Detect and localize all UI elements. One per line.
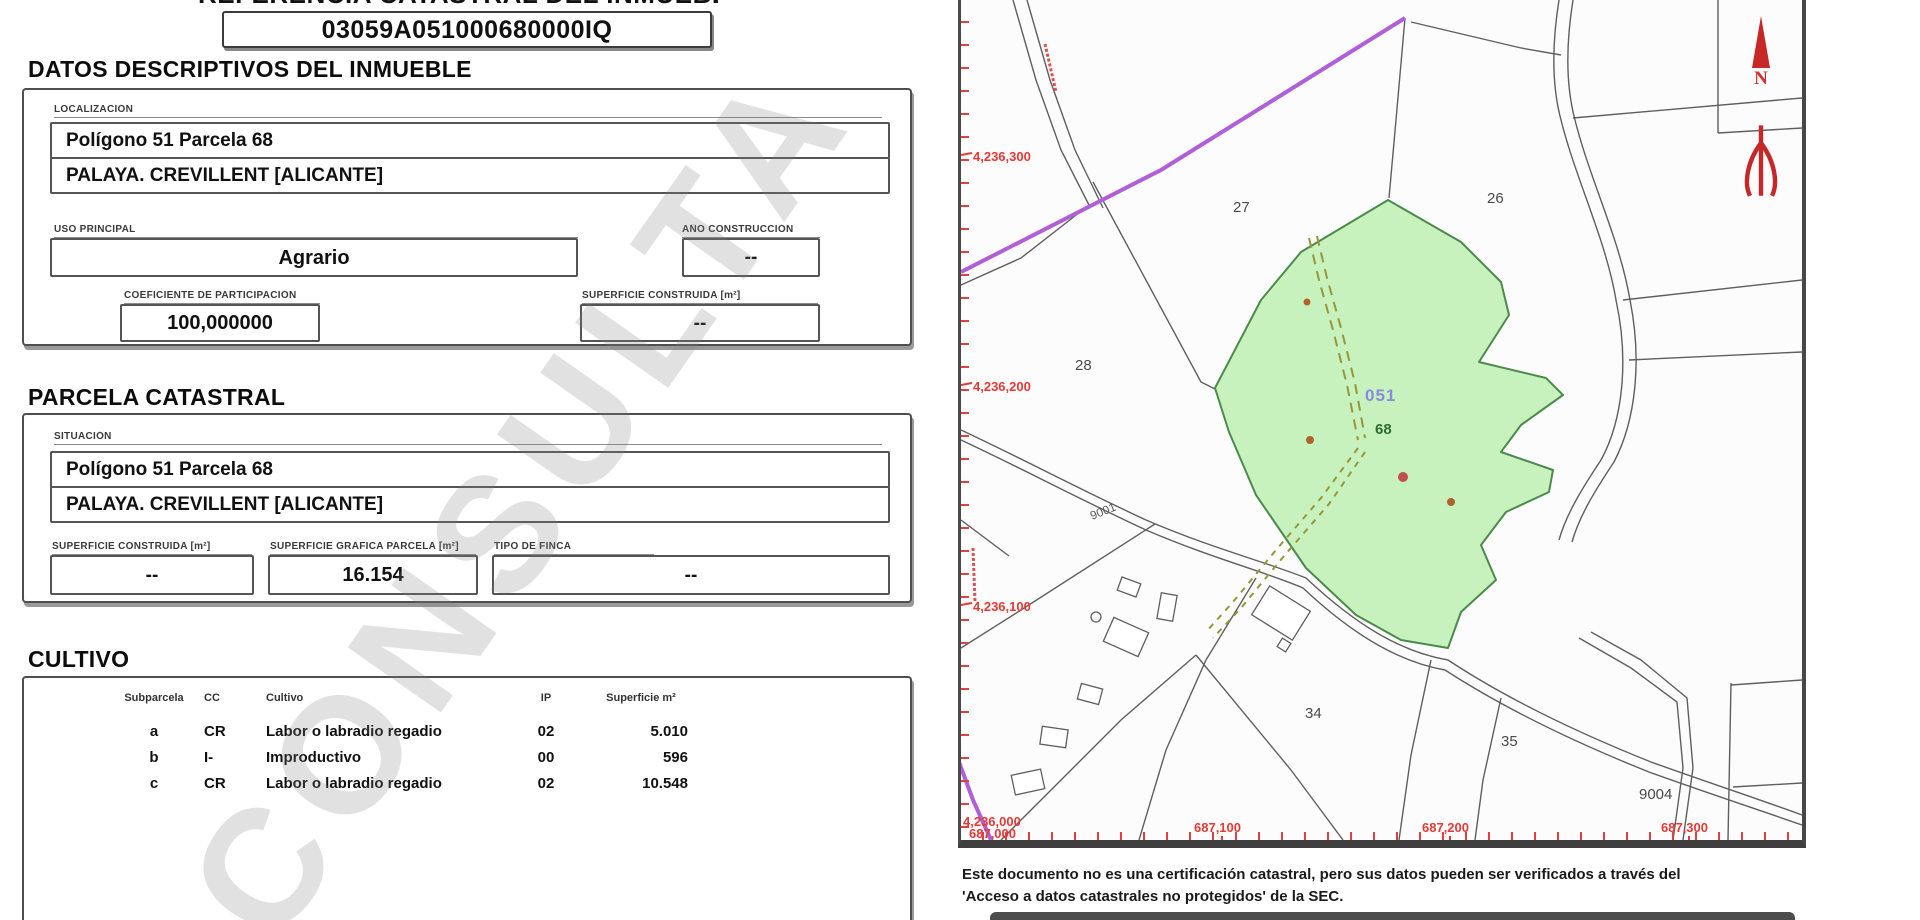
localizacion-line2: PALAYA. CREVILLENT [ALICANTE] <box>50 157 890 194</box>
col-header-subparcela: Subparcela <box>104 692 204 714</box>
coeficiente-value: 100,000000 <box>120 304 320 342</box>
situacion-line1: Polígono 51 Parcela 68 <box>50 451 890 488</box>
row-b-sub: b <box>104 749 204 766</box>
north-arrow-icon <box>1752 16 1770 68</box>
sup-grafica-label: SUPERFICIE GRÁFICA PARCELA [m²] <box>270 541 476 555</box>
row-c-cultivo: Labor o labradio regadio <box>266 775 516 792</box>
row-a-ip: 02 <box>516 723 576 740</box>
parcela-box: SITUACIÓN Polígono 51 Parcela 68 PALAYA.… <box>22 413 912 603</box>
cadastral-reference-value: 03059A051000680000IQ <box>222 11 712 48</box>
parcel-label-68: 68 <box>1375 421 1392 438</box>
bottom-coordinate-ticks <box>961 832 1802 840</box>
cadastral-map: 4,236,300 4,236,200 4,236,100 4,236,000 … <box>958 0 1806 848</box>
uso-principal-label: USO PRINCIPAL <box>54 224 578 238</box>
superficie-construida-value: -- <box>580 304 820 342</box>
superficie-construida-label: SUPERFICIE CONSTRUIDA [m²] <box>582 290 818 304</box>
row-b-ip: 00 <box>516 749 576 766</box>
subparcel-label-051: 051 <box>1365 386 1396 405</box>
cultivo-box: Subparcela CC Cultivo IP Superficie m² a… <box>22 676 912 920</box>
north-arrow: N <box>1739 16 1783 166</box>
row-b-cc: I- <box>204 749 266 766</box>
situacion-label: SITUACIÓN <box>54 431 882 445</box>
road-label-9004: 9004 <box>1639 786 1672 803</box>
row-b-cultivo: Improductivo <box>266 749 516 766</box>
cadastral-certificate-page: REFERENCIA CATASTRAL DEL INMUEBLE 03059A… <box>0 0 1920 920</box>
row-c-superficie: 10.548 <box>576 775 716 792</box>
col-header-cc: CC <box>204 692 266 714</box>
col-header-cultivo: Cultivo <box>266 692 516 714</box>
coord-left-4236200: 4,236,200 <box>973 379 1031 394</box>
left-coordinate-ticks <box>961 0 969 840</box>
row-c-ip: 02 <box>516 775 576 792</box>
row-a-sub: a <box>104 723 204 740</box>
row-b-superficie: 596 <box>576 749 716 766</box>
disclaimer-line2: 'Acceso a datos catastrales no protegido… <box>962 886 1807 908</box>
disclaimer-line1: Este documento no es una certificación c… <box>962 864 1807 886</box>
parcel-label-28: 28 <box>1075 357 1092 374</box>
coord-left-4236100: 4,236,100 <box>973 599 1031 614</box>
datos-box: LOCALIZACIÓN Polígono 51 Parcela 68 PALA… <box>22 88 912 346</box>
ano-construccion-label: AÑO CONSTRUCCIÓN <box>682 224 820 238</box>
sup-grafica-value: 16.154 <box>268 555 478 595</box>
situacion-line2: PALAYA. CREVILLENT [ALICANTE] <box>50 486 890 523</box>
col-header-ip: IP <box>516 692 576 714</box>
north-ornament-icon <box>1739 90 1783 240</box>
parcel-label-34: 34 <box>1305 705 1322 722</box>
coeficiente-label: COEFICIENTE DE PARTICIPACIÓN <box>124 290 320 304</box>
reference-header-clipped: REFERENCIA CATASTRAL DEL INMUEBLE <box>198 0 718 9</box>
reference-header-text: REFERENCIA CATASTRAL DEL INMUEBLE <box>198 0 718 9</box>
coord-left-4236300: 4,236,300 <box>973 149 1031 164</box>
localizacion-line1: Polígono 51 Parcela 68 <box>50 122 890 159</box>
map-drawing: 4,236,300 4,236,200 4,236,100 4,236,000 … <box>961 0 1802 840</box>
parcel-label-27: 27 <box>1233 199 1250 216</box>
road-label-9001: 9001 <box>1088 500 1118 523</box>
row-a-superficie: 5.010 <box>576 723 716 740</box>
road-name-red-vertical-left <box>973 548 975 602</box>
parcela-sup-construida-value: -- <box>50 555 254 595</box>
map-disclaimer: Este documento no es una certificación c… <box>962 864 1807 908</box>
row-c-cc: CR <box>204 775 266 792</box>
north-letter: N <box>1739 68 1783 90</box>
row-c-sub: c <box>104 775 204 792</box>
uso-principal-value: Agrario <box>50 238 578 277</box>
col-header-superficie: Superficie m² <box>576 692 716 714</box>
parcela-sup-construida-label: SUPERFICIE CONSTRUIDA [m²] <box>52 541 252 555</box>
section-title-cultivo: CULTIVO <box>28 646 129 673</box>
parcel-label-26: 26 <box>1487 190 1504 207</box>
tipo-finca-label: TIPO DE FINCA <box>494 541 654 555</box>
tipo-finca-value: -- <box>492 555 890 595</box>
parcel-label-35: 35 <box>1501 733 1518 750</box>
ano-construccion-value: -- <box>682 238 820 277</box>
cultivo-table: Subparcela CC Cultivo IP Superficie m² a… <box>104 692 716 792</box>
localizacion-label: LOCALIZACIÓN <box>54 104 882 118</box>
cut-off-element-edge <box>990 912 1795 920</box>
section-title-parcela: PARCELA CATASTRAL <box>28 384 285 411</box>
row-a-cultivo: Labor o labradio regadio <box>266 723 516 740</box>
row-a-cc: CR <box>204 723 266 740</box>
section-title-datos: DATOS DESCRIPTIVOS DEL INMUEBLE <box>28 56 472 83</box>
